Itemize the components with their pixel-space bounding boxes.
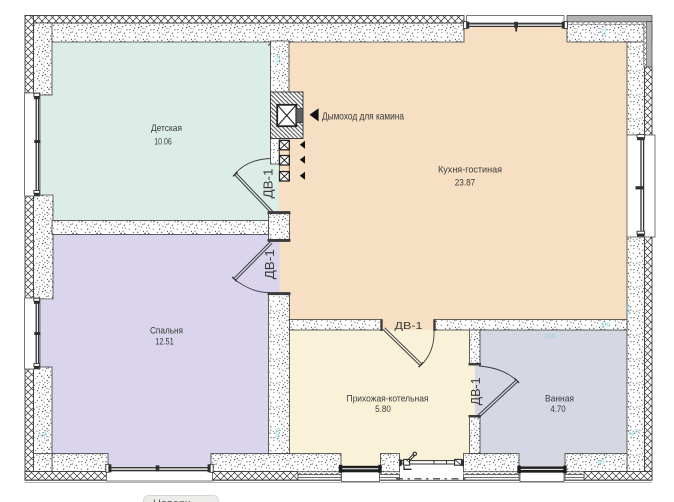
svg-text:ДВ-1: ДВ-1: [263, 249, 277, 279]
svg-text:4.70: 4.70: [550, 404, 565, 414]
svg-text:300: 300: [600, 322, 611, 329]
svg-text:300: 300: [275, 427, 282, 438]
svg-text:Ванная: Ванная: [545, 394, 574, 405]
svg-text:23.87: 23.87: [455, 178, 476, 188]
svg-text:300: 300: [601, 26, 608, 37]
svg-text:ДВ-1: ДВ-1: [262, 168, 276, 198]
svg-text:300: 300: [275, 53, 282, 64]
svg-text:ДВ-1: ДВ-1: [469, 377, 483, 405]
svg-text:300: 300: [626, 304, 632, 315]
svg-text:12.51: 12.51: [155, 337, 174, 347]
svg-text:Детская: Детская: [151, 123, 182, 134]
svg-text:Кухня-гостиная: Кухня-гостиная: [438, 165, 502, 176]
svg-text:5.80: 5.80: [375, 404, 391, 414]
svg-text:Дымоход для камина: Дымоход для камина: [322, 112, 404, 123]
svg-text:Прихожая-котельная: Прихожая-котельная: [347, 394, 429, 405]
svg-text:ДВ-1: ДВ-1: [395, 320, 423, 332]
svg-text:Спальня: Спальня: [150, 326, 183, 337]
svg-text:10.06: 10.06: [154, 137, 172, 147]
svg-text:Наверх: Наверх: [153, 498, 191, 502]
svg-text:300: 300: [545, 333, 556, 340]
